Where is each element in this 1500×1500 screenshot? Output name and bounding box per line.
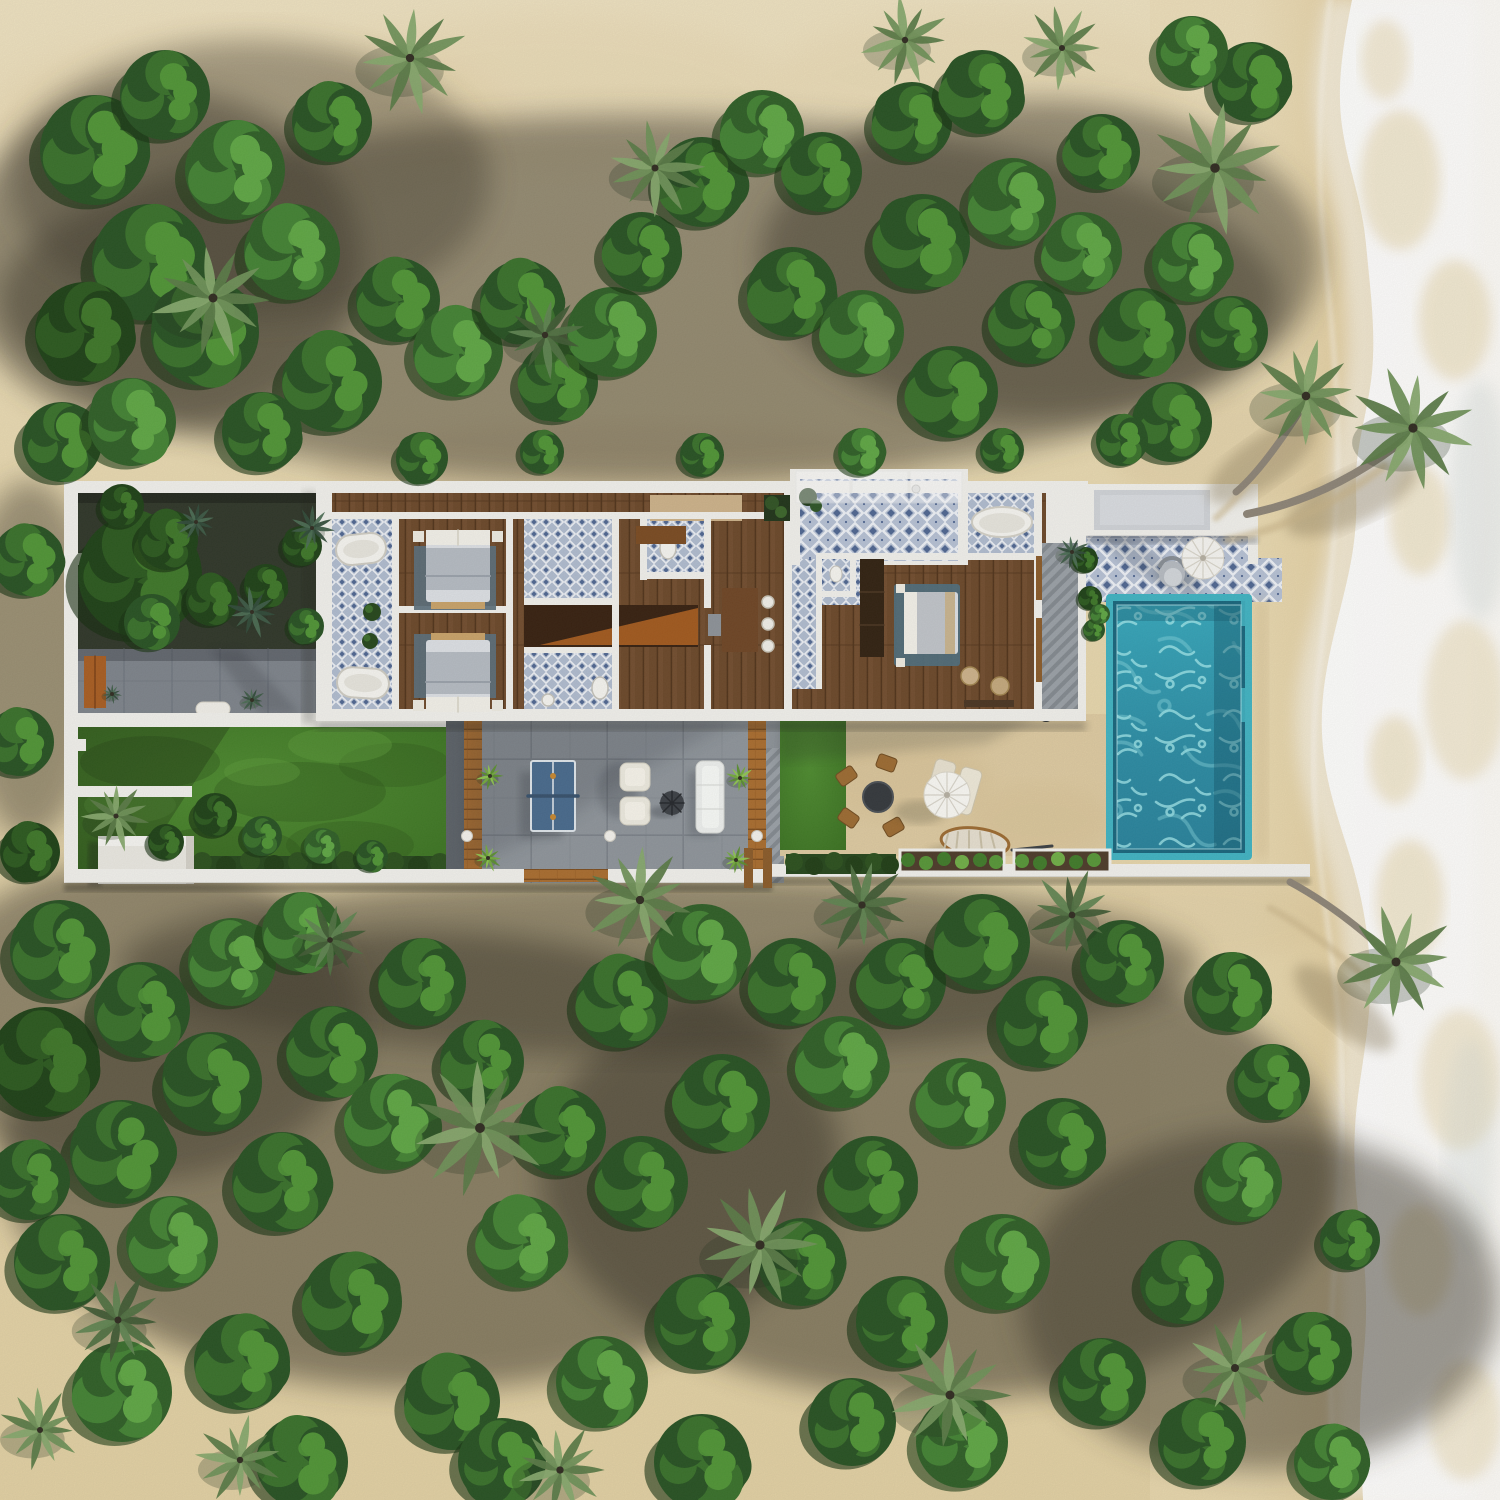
scene-canvas [0,0,1500,1500]
beachfront-villa-aerial-render [0,0,1500,1500]
film-grain [0,0,1500,1500]
